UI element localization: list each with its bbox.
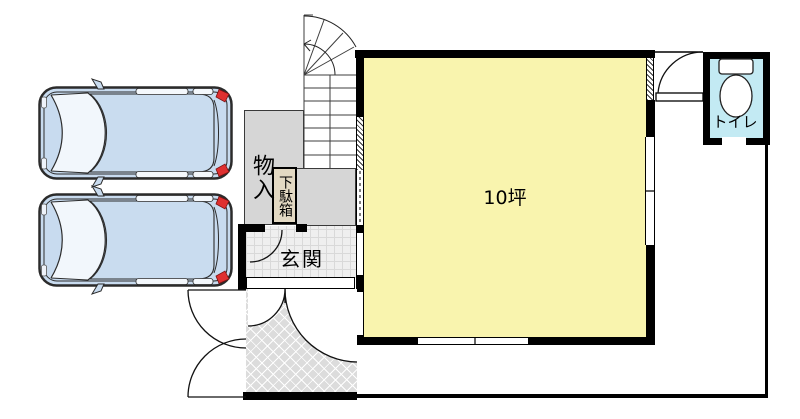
wall-room-right-upper	[646, 100, 655, 137]
entrance-hall-label-text: 玄関	[280, 243, 324, 272]
floor-plan: 物入 下駄箱 玄関 10坪 トイレ	[0, 0, 800, 419]
wall-room-left-upper	[356, 50, 364, 117]
toilet-label: トイレ	[705, 112, 765, 130]
parking-area	[0, 0, 238, 419]
toilet-door-gap	[722, 137, 746, 145]
wall-room-left-mid2	[356, 275, 364, 292]
wall-room-right-lower	[646, 245, 655, 345]
wall-opening-left-lower2	[356, 292, 364, 335]
entrance-hall-label: 玄関	[266, 244, 338, 270]
wall-room-left-mid1	[356, 225, 364, 233]
wall-room-top	[355, 50, 655, 58]
main-room-label-text: 10坪	[483, 183, 526, 210]
wall-opening-hatch-left	[356, 117, 364, 170]
toilet-label-text: トイレ	[712, 111, 757, 132]
staircase-area	[304, 15, 356, 168]
wall-room-bottom-right	[528, 337, 655, 345]
site-boundary-bottom	[355, 394, 768, 398]
hallway-area	[296, 168, 356, 226]
entrance-door	[246, 277, 355, 289]
shoe-box-label: 下駄箱	[274, 169, 296, 223]
main-room-label: 10坪	[460, 184, 550, 208]
entrance-porch-area	[246, 289, 357, 393]
toilet-door-arc	[658, 52, 703, 93]
wall-genkan-top-right	[296, 224, 307, 232]
storage-label: 物入	[246, 130, 276, 225]
window-bottom	[418, 337, 528, 345]
wall-room-bottom-left	[356, 337, 418, 345]
shoe-box-label-text: 下駄箱	[275, 175, 295, 217]
window-right	[645, 137, 655, 245]
wall-opening-hatch-right	[646, 58, 654, 100]
storage-label-text: 物入	[245, 154, 277, 202]
site-boundary-right	[765, 145, 768, 398]
wall-opening-left-lower1	[356, 233, 364, 275]
toilet-door-leaf	[656, 93, 703, 101]
wall-genkan-left	[238, 224, 246, 290]
wall-door-opening-hall	[356, 170, 364, 225]
wall-porch-bottom	[243, 392, 357, 400]
